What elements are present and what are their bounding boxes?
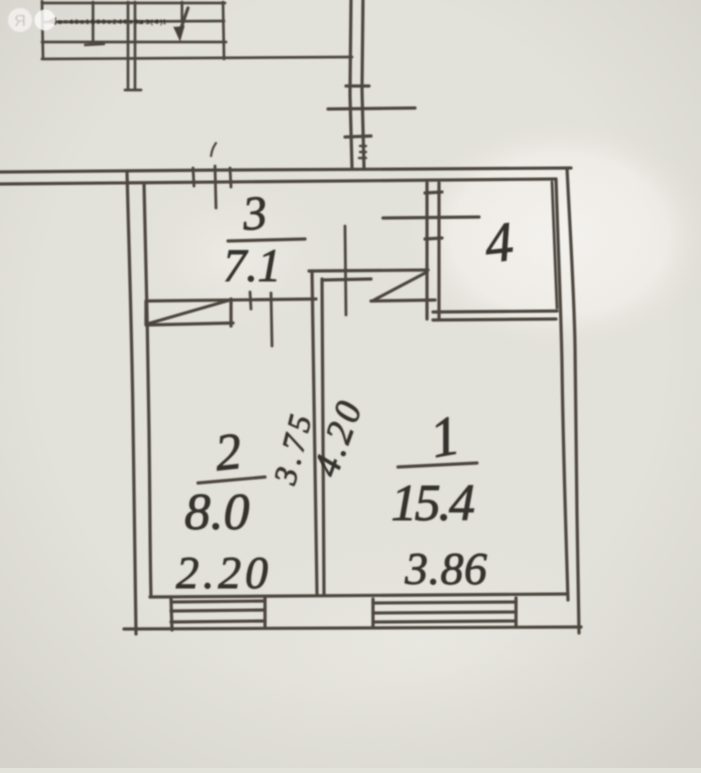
- svg-text:Я: Я: [14, 13, 26, 30]
- svg-text:8.0: 8.0: [185, 484, 250, 541]
- svg-text:7.1: 7.1: [223, 240, 281, 292]
- svg-text:3: 3: [240, 186, 269, 241]
- svg-text:2.20: 2.20: [176, 547, 268, 598]
- svg-text:15.4: 15.4: [391, 475, 475, 532]
- svg-text:3.86: 3.86: [404, 543, 487, 594]
